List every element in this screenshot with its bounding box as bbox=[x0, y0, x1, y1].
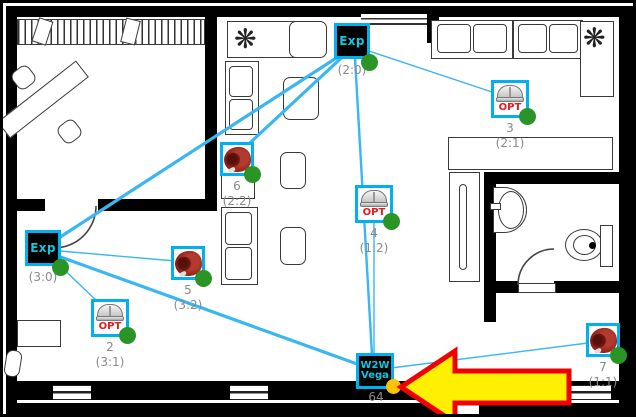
device-address: (3:2) bbox=[158, 298, 218, 312]
window bbox=[230, 385, 268, 400]
sofa bbox=[513, 20, 583, 59]
wall bbox=[17, 199, 45, 211]
sink bbox=[498, 191, 524, 229]
wall bbox=[484, 281, 518, 293]
window bbox=[53, 385, 91, 400]
chair bbox=[3, 349, 23, 378]
sofa bbox=[221, 207, 258, 285]
sofa bbox=[225, 61, 259, 135]
device-label: Exp bbox=[30, 241, 55, 255]
passage-opening bbox=[361, 14, 427, 28]
wall bbox=[484, 172, 621, 184]
status-dot bbox=[383, 213, 400, 230]
device-address: (1:2) bbox=[344, 241, 404, 255]
chair bbox=[280, 227, 306, 265]
plant-icon: ❋ bbox=[583, 25, 606, 52]
device-label: OPT bbox=[99, 321, 122, 332]
device-label: Exp bbox=[339, 34, 364, 48]
device-address: (3:1) bbox=[80, 355, 140, 369]
device-label: OPT bbox=[499, 102, 522, 113]
status-dot bbox=[195, 270, 212, 287]
wall bbox=[554, 281, 621, 293]
device-number: 5 bbox=[158, 283, 218, 297]
device-label: OPT bbox=[363, 207, 386, 218]
device-number: 7 bbox=[573, 360, 633, 374]
wall bbox=[6, 6, 636, 17]
device-address: (2:2) bbox=[207, 194, 267, 208]
plant-icon: ❋ bbox=[234, 26, 257, 53]
toilet-drain bbox=[589, 242, 596, 249]
floorplan-canvas: ❋ ❋ bbox=[0, 0, 636, 417]
device-address: (2:1) bbox=[480, 136, 540, 150]
wall bbox=[619, 6, 636, 381]
exit-doorway bbox=[439, 382, 479, 417]
status-dot bbox=[52, 259, 69, 276]
detector-icon bbox=[361, 190, 387, 203]
status-dot bbox=[244, 166, 261, 183]
status-dot bbox=[519, 108, 536, 125]
link-exp30-sounder5 bbox=[60, 251, 175, 261]
status-dot bbox=[610, 347, 627, 364]
status-dot bbox=[119, 327, 136, 344]
detector-icon bbox=[497, 85, 523, 98]
wall bbox=[98, 199, 217, 211]
wall-gap bbox=[17, 400, 619, 403]
armchair bbox=[283, 77, 319, 120]
sofa bbox=[431, 20, 513, 59]
door-leaf bbox=[518, 283, 556, 293]
toilet-tank bbox=[600, 225, 613, 267]
status-dot bbox=[386, 379, 401, 394]
chair bbox=[55, 117, 84, 146]
detector-icon bbox=[97, 304, 123, 317]
wall bbox=[6, 381, 636, 417]
link-panel-sounder7 bbox=[391, 343, 588, 368]
armchair bbox=[289, 21, 327, 58]
panel-label-line2: Vega bbox=[360, 371, 389, 382]
table bbox=[17, 320, 61, 347]
door-arc bbox=[518, 249, 554, 285]
tv bbox=[459, 184, 467, 270]
device-number: 6 bbox=[207, 179, 267, 193]
chair bbox=[280, 152, 306, 189]
device-address: (1:1) bbox=[573, 375, 633, 389]
status-dot bbox=[361, 54, 378, 71]
sink-tap bbox=[490, 203, 501, 210]
